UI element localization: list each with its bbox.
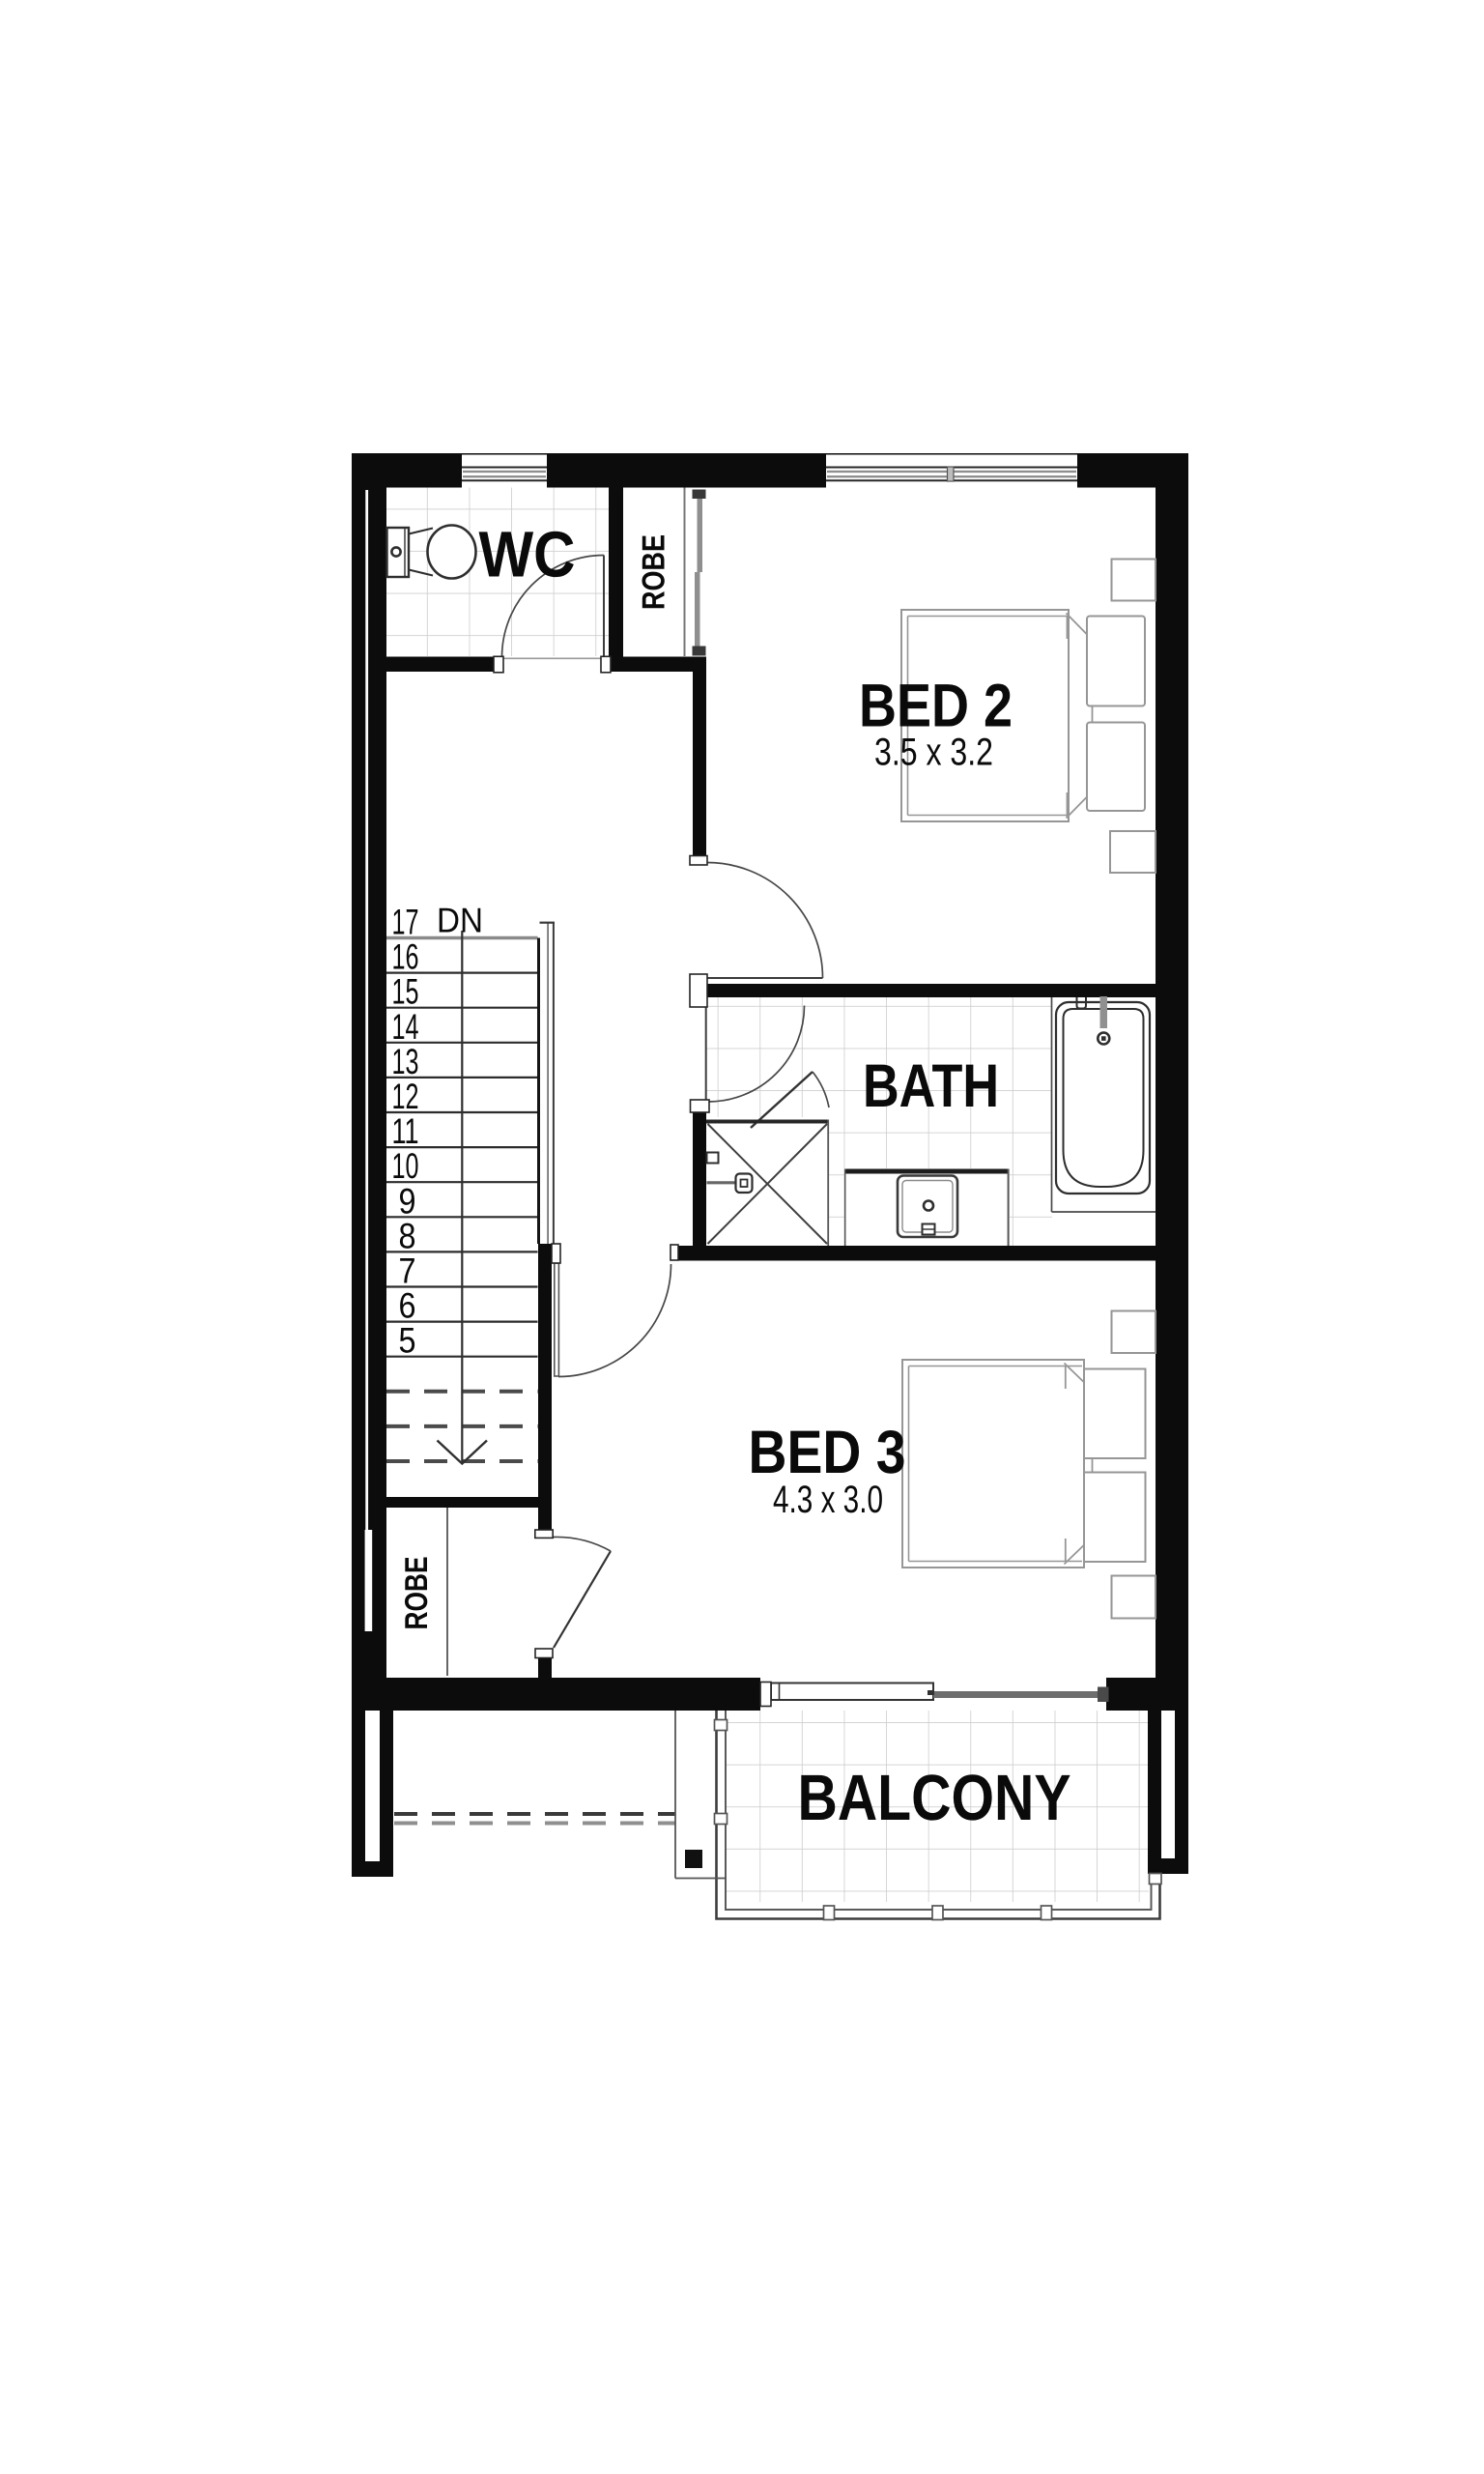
svg-text:17: 17 — [392, 903, 419, 942]
svg-text:BALCONY: BALCONY — [798, 1762, 1071, 1834]
svg-text:5: 5 — [399, 1321, 416, 1361]
svg-text:9: 9 — [399, 1181, 416, 1221]
svg-text:ROBE: ROBE — [398, 1557, 434, 1630]
svg-text:4.3 x 3.0: 4.3 x 3.0 — [773, 1479, 883, 1521]
svg-text:3.5 x 3.2: 3.5 x 3.2 — [874, 732, 993, 774]
svg-text:DN: DN — [437, 901, 483, 940]
svg-text:14: 14 — [392, 1007, 419, 1047]
svg-text:13: 13 — [392, 1042, 419, 1081]
svg-text:10: 10 — [392, 1146, 419, 1186]
svg-text:16: 16 — [392, 937, 419, 977]
svg-text:BED 2: BED 2 — [859, 673, 1013, 740]
svg-text:12: 12 — [392, 1077, 419, 1116]
svg-text:WC: WC — [479, 519, 576, 591]
svg-text:11: 11 — [392, 1111, 419, 1151]
svg-text:7: 7 — [399, 1251, 416, 1291]
svg-text:BATH: BATH — [863, 1052, 999, 1120]
svg-text:ROBE: ROBE — [636, 534, 671, 610]
svg-text:6: 6 — [399, 1286, 416, 1326]
svg-text:15: 15 — [392, 972, 419, 1012]
svg-text:BED 3: BED 3 — [749, 1419, 906, 1486]
svg-text:8: 8 — [399, 1216, 416, 1255]
